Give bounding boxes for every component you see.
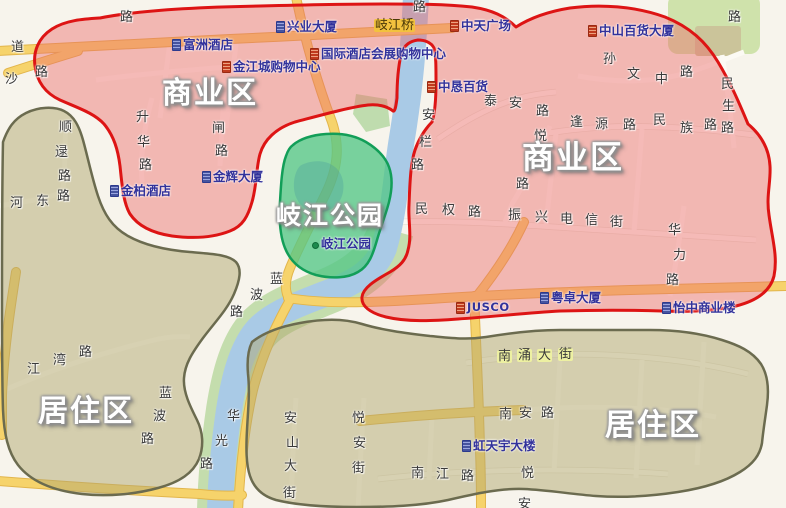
poi-jusco-label: JUSCO xyxy=(467,302,510,314)
road-label-hedong-lu-char-0: 河 xyxy=(10,197,23,210)
road-label-minquan-lu-char-1: 权 xyxy=(442,204,455,217)
poi-intl-hotel-expo-mall-label: 国际酒店会展购物中心 xyxy=(321,48,446,61)
map-canvas[interactable]: 路道沙路顺逯路河东路升华路闸路江湾路蓝波路蓝波路华光路安山大街悦安街南江路悦安南… xyxy=(0,0,786,508)
road-label-zhenxing-dianxin-jie-char-4: 街 xyxy=(610,216,623,229)
poi-zhongshan-dept-store-label: 中山百货大厦 xyxy=(599,25,674,38)
road-label-anlan-lu-char-1: 栏 xyxy=(419,136,432,149)
road-label-nanan-lu-char-0: 南 xyxy=(499,408,512,421)
poi-yizhong-commercial-building[interactable]: 怡中商业楼 xyxy=(662,302,736,315)
road-label-minsheng-lu-char-0: 民 xyxy=(721,78,734,91)
zone-label-commercial-east: 商业区 xyxy=(522,141,624,173)
road-label-jiangwan-lu-char-2: 路 xyxy=(79,346,92,359)
poi-zhongtian-plaza-label: 中天广场 xyxy=(461,20,511,33)
poi-yizhong-commercial-building-building-icon xyxy=(662,302,671,314)
road-label-nanyong-dajie-char-1: 涌 xyxy=(517,349,532,362)
road-label-lanbo-lu-north-char-2: 路 xyxy=(230,306,243,319)
road-label-fengyuan-lu-char-1: 源 xyxy=(595,118,608,131)
road-label-yuean-jie-char-1: 安 xyxy=(353,437,366,450)
road-label-nanyong-dajie-char-3: 街 xyxy=(558,348,573,361)
road-label-huali-lu-char-0: 华 xyxy=(668,224,681,237)
road-label-minsheng-lu-char-2: 路 xyxy=(721,122,734,135)
poi-fuzhou-hotel-building-icon xyxy=(172,39,181,51)
road-label-taian-lu-char-0: 泰 xyxy=(484,95,497,108)
road-label-sha-lu-char-1: 路 xyxy=(35,66,48,79)
poi-fuzhou-hotel[interactable]: 富洲酒店 xyxy=(172,39,233,52)
poi-jinjiangcheng-mall-building-icon xyxy=(222,61,231,73)
road-label-fengyuan-lu-char-2: 路 xyxy=(623,119,636,132)
poi-zhongken-dept-store-building-icon xyxy=(427,81,436,93)
road-label-nanjiang-lu-char-0: 南 xyxy=(411,467,424,480)
road-label-taian-lu-char-1: 安 xyxy=(509,97,522,110)
road-label-zha-lu-char-0: 闸 xyxy=(212,122,225,135)
poi-zhongshan-dept-store[interactable]: 中山百货大厦 xyxy=(588,25,674,38)
poi-xingye-building-label: 兴业大厦 xyxy=(287,21,337,34)
road-label-anshan-dajie-char-1: 山 xyxy=(286,437,299,450)
road-label-anlan-lu-char-0: 安 xyxy=(422,109,435,122)
poi-qijiang-park-label: 岐江公园 xyxy=(321,238,371,251)
poi-zhongshan-dept-store-building-icon xyxy=(588,25,597,37)
zone-label-residential-west: 居住区 xyxy=(38,397,134,427)
poi-jinbai-hotel[interactable]: 金柏酒店 xyxy=(110,185,171,198)
road-label-sunwen-zhonglu-char-3: 路 xyxy=(680,66,693,79)
label-layer: 路道沙路顺逯路河东路升华路闸路江湾路蓝波路蓝波路华光路安山大街悦安街南江路悦安南… xyxy=(0,0,786,508)
poi-jinjiangcheng-mall-label: 金江城购物中心 xyxy=(233,61,321,74)
poi-zhongken-dept-store-label: 中恳百货 xyxy=(438,81,488,94)
road-label-huali-lu-char-2: 路 xyxy=(666,274,679,287)
poi-jusco[interactable]: JUSCO xyxy=(456,302,510,314)
road-label-minquan-lu-char-2: 路 xyxy=(468,206,481,219)
road-label-sunwen-zhonglu-char-0: 孙 xyxy=(603,53,616,66)
road-label-hedong-lu-char-1: 东 xyxy=(36,195,49,208)
poi-intl-hotel-expo-mall-building-icon xyxy=(310,48,319,60)
road-label-nanyong-dajie-char-0: 南 xyxy=(497,350,512,363)
poi-hongtianyu-building-building-icon xyxy=(462,440,471,452)
poi-hongtianyu-building[interactable]: 虹天宇大楼 xyxy=(462,440,536,453)
poi-yizhong-commercial-building-label: 怡中商业楼 xyxy=(673,302,736,315)
poi-zhongtian-plaza-building-icon xyxy=(450,20,459,32)
road-label-zha-lu-char-1: 路 xyxy=(215,145,228,158)
road-label-shenghua-lu-char-1: 华 xyxy=(137,136,150,149)
poi-jinhui-building-building-icon xyxy=(202,171,211,183)
road-label-lanbo-lu-south-char-0: 蓝 xyxy=(159,387,172,400)
road-label-shenghua-lu-char-0: 升 xyxy=(136,111,149,124)
poi-yuezhuo-building-building-icon xyxy=(540,292,549,304)
road-label-minzu-lu-char-1: 族 xyxy=(680,122,693,135)
poi-intl-hotel-expo-mall[interactable]: 国际酒店会展购物中心 xyxy=(310,48,446,61)
road-label-taian-lu-char-2: 路 xyxy=(536,105,549,118)
road-label-jiangwan-lu-char-1: 湾 xyxy=(53,354,66,367)
road-label-hedong-lu-char-2: 路 xyxy=(57,190,70,203)
road-label-lu-topright-char-0: 路 xyxy=(728,11,741,24)
road-label-lanbo-lu-north-char-1: 波 xyxy=(250,289,263,302)
road-label-yuean-jie-char-0: 悦 xyxy=(352,412,365,425)
road-label-huaguang-lu-char-2: 路 xyxy=(200,458,213,471)
road-label-sha-lu-char-0: 沙 xyxy=(5,73,18,86)
road-label-lu-bridge-char-0: 路 xyxy=(413,1,426,14)
road-label-anshan-dajie-char-0: 安 xyxy=(284,412,297,425)
road-label-huaguang-lu-char-0: 华 xyxy=(227,410,240,423)
road-label-fengyuan-lu-char-0: 逢 xyxy=(570,116,583,129)
road-label-shunlu-lu-char-1: 逯 xyxy=(55,146,68,159)
poi-zhongken-dept-store[interactable]: 中恳百货 xyxy=(427,81,488,94)
road-label-minzu-lu-char-2: 路 xyxy=(704,119,717,132)
road-label-anshan-dajie-char-2: 大 xyxy=(284,460,297,473)
zone-label-commercial-west: 商业区 xyxy=(162,79,258,109)
road-label-nanjiang-lu-char-2: 路 xyxy=(461,470,474,483)
road-label-yuean-jie-char-2: 街 xyxy=(352,462,365,475)
poi-jusco-building-icon xyxy=(456,302,465,314)
poi-xingye-building[interactable]: 兴业大厦 xyxy=(276,21,337,34)
poi-yuezhuo-building-label: 粤卓大厦 xyxy=(551,292,601,305)
road-label-yue-an-char-1: 安 xyxy=(518,498,531,508)
road-label-dao-char-0: 道 xyxy=(11,41,24,54)
poi-jinhui-building[interactable]: 金辉大厦 xyxy=(202,171,263,184)
road-label-jiangwan-lu-char-0: 江 xyxy=(27,363,40,376)
road-label-minquan-lu-char-0: 民 xyxy=(415,203,428,216)
poi-hongtianyu-building-label: 虹天宇大楼 xyxy=(473,440,536,453)
road-label-lanbo-lu-south-char-1: 波 xyxy=(153,410,166,423)
road-label-nanyong-dajie-char-2: 大 xyxy=(537,349,552,362)
road-label-minzu-lu-char-0: 民 xyxy=(653,114,666,127)
road-label-lanbo-lu-south-char-2: 路 xyxy=(141,433,154,446)
road-label-shunlu-lu-char-2: 路 xyxy=(58,170,71,183)
poi-jinhui-building-label: 金辉大厦 xyxy=(213,171,263,184)
road-label-anshan-dajie-char-3: 街 xyxy=(283,487,296,500)
road-label-anlan-lu-char-2: 路 xyxy=(411,159,424,172)
zone-label-qijiang-park: 岐江公园 xyxy=(276,203,384,228)
poi-xingye-building-building-icon xyxy=(276,21,285,33)
road-label-zhenxing-dianxin-jie-char-1: 兴 xyxy=(535,211,548,224)
poi-fuzhou-hotel-label: 富洲酒店 xyxy=(183,39,233,52)
road-label-shenghua-lu-char-2: 路 xyxy=(139,159,152,172)
poi-qijiang-park[interactable]: 岐江公园 xyxy=(312,238,371,251)
poi-qijiang-park-park-dot-icon xyxy=(312,242,319,249)
road-label-zhenxing-dianxin-jie-char-0: 振 xyxy=(508,209,521,222)
road-label-zhenxing-dianxin-jie-char-2: 电 xyxy=(560,213,573,226)
poi-jinjiangcheng-mall[interactable]: 金江城购物中心 xyxy=(222,61,321,74)
road-label-lu-topleft-char-0: 路 xyxy=(120,11,133,24)
bridge-label-qijiangqiao-char-2: 桥 xyxy=(400,19,415,32)
road-label-huali-lu-char-1: 力 xyxy=(673,249,686,262)
road-label-nanan-lu-char-2: 路 xyxy=(541,407,554,420)
road-label-sunwen-zhonglu-char-1: 文 xyxy=(627,68,640,81)
poi-yuezhuo-building[interactable]: 粤卓大厦 xyxy=(540,292,601,305)
road-label-zhenxing-dianxin-jie-char-3: 信 xyxy=(585,214,598,227)
road-label-sunwen-zhonglu-char-2: 中 xyxy=(655,73,668,86)
poi-zhongtian-plaza[interactable]: 中天广场 xyxy=(450,20,511,33)
road-label-huaguang-lu-char-1: 光 xyxy=(215,435,228,448)
poi-jinbai-hotel-label: 金柏酒店 xyxy=(121,185,171,198)
road-label-yuelai-lu-char-2: 路 xyxy=(516,178,529,191)
road-label-minsheng-lu-char-1: 生 xyxy=(722,100,735,113)
road-label-yue-an-char-0: 悦 xyxy=(521,467,534,480)
road-label-nanjiang-lu-char-1: 江 xyxy=(436,468,449,481)
road-label-shunlu-lu-char-0: 顺 xyxy=(59,121,72,134)
road-label-nanan-lu-char-1: 安 xyxy=(519,407,532,420)
zone-label-residential-east: 居住区 xyxy=(605,411,701,441)
road-label-lanbo-lu-north-char-0: 蓝 xyxy=(270,273,283,286)
poi-jinbai-hotel-building-icon xyxy=(110,185,119,197)
